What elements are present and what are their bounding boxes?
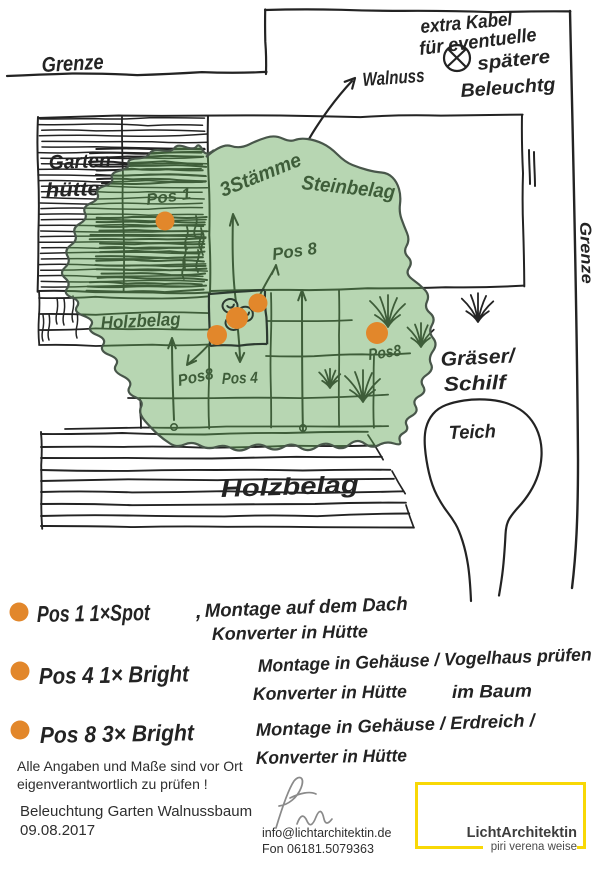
svg-text:Walnuss: Walnuss — [362, 66, 425, 91]
svg-text:Konverter in Hütte: Konverter in Hütte — [253, 681, 407, 704]
svg-text:Schilf: Schilf — [443, 372, 508, 396]
svg-text:Holzbelag: Holzbelag — [220, 471, 359, 503]
svg-text:Pos 1 1×Spot: Pos 1 1×Spot — [37, 599, 151, 627]
svg-text:Konverter in Hütte: Konverter in Hütte — [212, 621, 368, 644]
svg-text:,: , — [195, 601, 202, 623]
svg-text:Konverter in Hütte: Konverter in Hütte — [256, 745, 407, 768]
svg-text:Teich: Teich — [448, 421, 496, 444]
svg-text:Pos 8 3× Bright: Pos 8 3× Bright — [40, 719, 196, 748]
svg-text:hütte: hütte — [45, 178, 100, 202]
svg-text:Garten: Garten — [48, 150, 111, 174]
svg-text:Grenze: Grenze — [576, 222, 595, 285]
svg-text:Grenze: Grenze — [41, 51, 104, 77]
svg-text:im Baum: im Baum — [452, 681, 532, 702]
svg-text:Pos 4 1× Bright: Pos 4 1× Bright — [39, 660, 191, 689]
svg-text:Gräser/: Gräser/ — [440, 345, 518, 371]
